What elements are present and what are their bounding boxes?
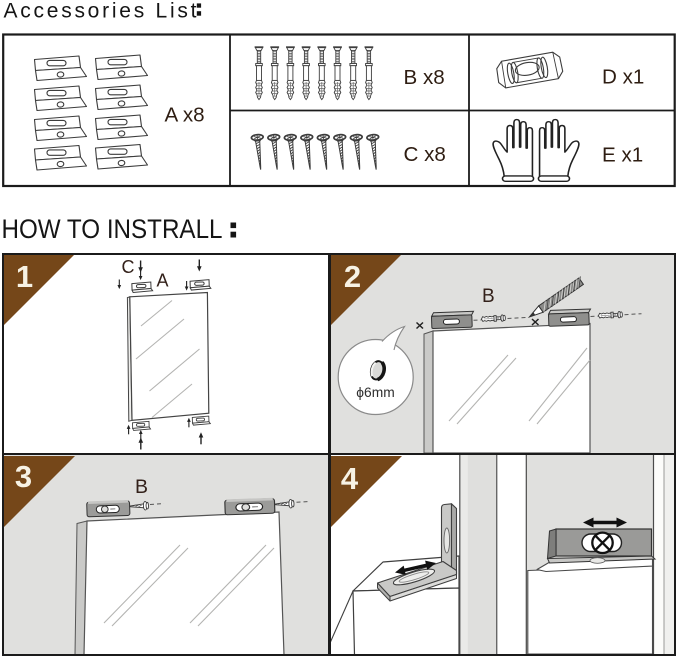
svg-text:2: 2: [344, 259, 361, 294]
svg-text:E x1: E x1: [602, 144, 643, 167]
svg-text:1: 1: [16, 259, 33, 294]
svg-text:A: A: [157, 271, 169, 291]
svg-text:4: 4: [341, 461, 359, 496]
svg-text:HOW TO INSTRALL: HOW TO INSTRALL: [2, 214, 223, 244]
svg-text:ϕ6mm: ϕ6mm: [356, 385, 394, 400]
svg-text:A x8: A x8: [165, 104, 205, 127]
svg-text:B: B: [135, 476, 148, 498]
svg-text:3: 3: [15, 459, 32, 494]
svg-text:D x1: D x1: [602, 66, 644, 89]
svg-text:B x8: B x8: [404, 66, 445, 89]
svg-text:C: C: [122, 257, 135, 277]
svg-text:B: B: [482, 286, 495, 307]
svg-text:C x8: C x8: [404, 143, 446, 166]
